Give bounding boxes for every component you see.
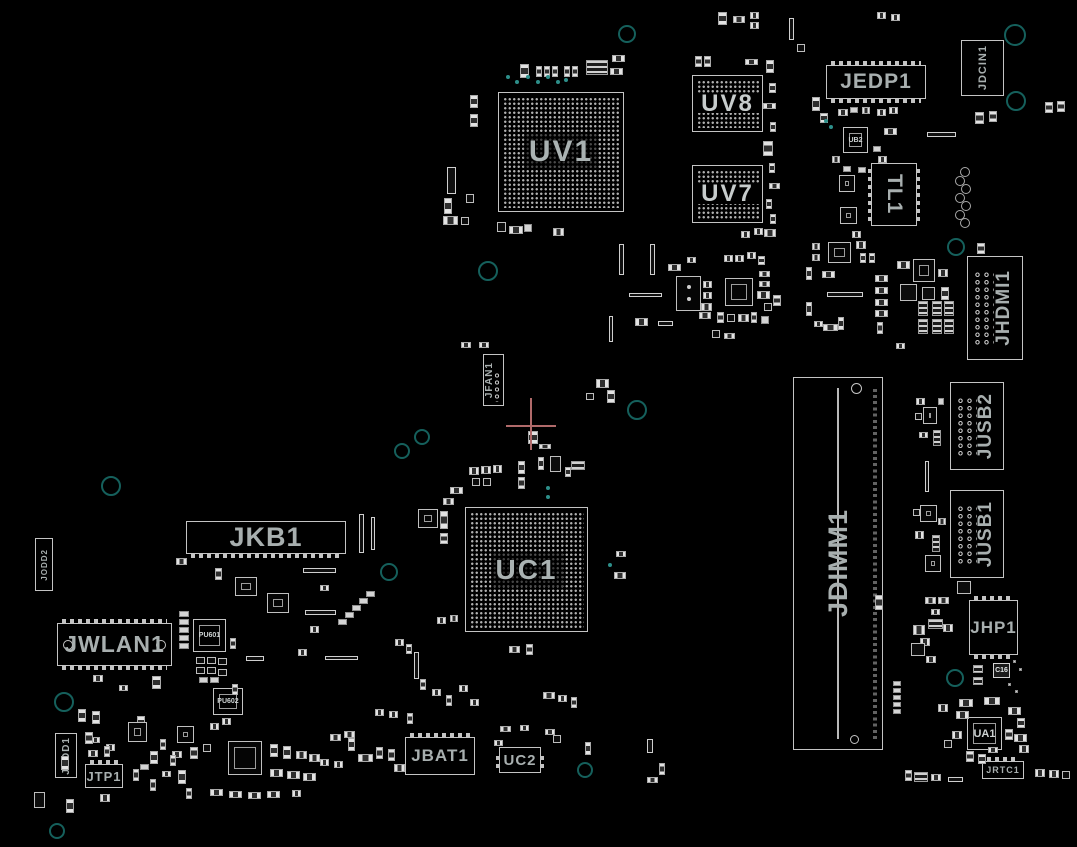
- component-label-jodd2: JODD2: [36, 539, 52, 590]
- passive-component: [229, 791, 242, 798]
- passive-component: [948, 777, 963, 782]
- component-uv8[interactable]: UV8: [692, 75, 763, 132]
- passive-component: [509, 226, 523, 234]
- passive-component: [1005, 729, 1013, 740]
- passive-component: [812, 97, 820, 111]
- component-ub2[interactable]: UB2: [843, 127, 868, 153]
- component-jbat1[interactable]: JBAT1: [405, 737, 475, 775]
- passive-component: [235, 577, 257, 596]
- passive-component: [923, 407, 937, 424]
- passive-component: [913, 625, 925, 635]
- passive-component: [1015, 690, 1018, 693]
- component-jkb1[interactable]: JKB1: [186, 521, 346, 554]
- passive-component: [884, 128, 897, 135]
- passive-component: [839, 175, 855, 192]
- passive-component: [893, 702, 901, 707]
- passive-component: [1019, 745, 1029, 753]
- mounting-hole: [380, 563, 398, 581]
- passive-component: [741, 231, 750, 238]
- passive-component: [828, 242, 851, 263]
- passive-component: [893, 695, 901, 700]
- passive-component: [1045, 102, 1053, 113]
- passive-component: [228, 741, 262, 775]
- passive-component: [989, 111, 997, 122]
- passive-component: [292, 790, 301, 797]
- coil-ring: [961, 184, 971, 194]
- component-label-uv1: UV1: [524, 134, 598, 170]
- passive-component: [769, 183, 780, 189]
- component-label-jfan1: JFAN1: [484, 355, 503, 405]
- passive-component: [938, 704, 948, 712]
- passive-component: [911, 643, 925, 656]
- passive-component: [497, 222, 506, 232]
- qfn-inner-pad: [424, 515, 432, 522]
- via-dot: [556, 80, 560, 84]
- passive-component: [928, 619, 943, 629]
- passive-component: [1057, 101, 1065, 112]
- component-label-jhdmi1: JHDMI1: [968, 257, 1022, 359]
- component-jhdmi1[interactable]: JHDMI1: [967, 256, 1023, 360]
- passive-component: [572, 66, 578, 77]
- passive-component: [210, 789, 223, 796]
- passive-component: [896, 343, 905, 349]
- passive-component: [875, 275, 888, 282]
- passive-component: [750, 12, 759, 19]
- passive-component: [757, 291, 770, 299]
- passive-component: [443, 216, 458, 225]
- passive-component: [550, 456, 561, 472]
- qfn-inner-pad: [845, 181, 849, 186]
- passive-component: [215, 568, 222, 580]
- component-jdimm1[interactable]: JDIMM1: [793, 377, 883, 750]
- passive-component: [344, 731, 355, 738]
- passive-component: [938, 398, 944, 405]
- passive-component: [552, 66, 558, 77]
- component-jodd2[interactable]: JODD2: [35, 538, 53, 591]
- passive-component: [459, 685, 468, 692]
- passive-component: [932, 319, 942, 334]
- passive-component: [759, 281, 770, 287]
- component-jhp1[interactable]: JHP1: [969, 600, 1018, 655]
- passive-component: [520, 725, 529, 731]
- passive-component: [571, 461, 585, 470]
- passive-component: [761, 316, 769, 324]
- via-dot: [515, 80, 519, 84]
- passive-component: [919, 432, 928, 438]
- passive-component: [913, 509, 920, 516]
- component-ua1[interactable]: UA1: [967, 717, 1002, 750]
- qfn-inner-pad: [273, 599, 283, 607]
- passive-component: [629, 293, 662, 297]
- qfn-inner-pad: [834, 248, 845, 257]
- passive-component: [738, 314, 749, 322]
- passive-component: [334, 761, 343, 768]
- passive-component: [832, 156, 840, 163]
- mounting-hole: [1006, 91, 1026, 111]
- component-uc1[interactable]: UC1: [465, 507, 588, 632]
- passive-component: [359, 598, 368, 604]
- passive-component: [470, 699, 479, 706]
- passive-component: [858, 167, 866, 173]
- passive-component: [406, 644, 412, 654]
- passive-component: [735, 255, 744, 262]
- connector-teeth: [191, 553, 341, 558]
- passive-component: [524, 224, 532, 232]
- mounting-hole: [54, 692, 74, 712]
- component-jedp1[interactable]: JEDP1: [826, 65, 926, 99]
- passive-component: [763, 103, 776, 109]
- passive-component: [914, 772, 928, 782]
- passive-component: [93, 675, 103, 682]
- passive-component: [1013, 660, 1016, 663]
- mounting-hole: [49, 823, 65, 839]
- pin-row: [540, 752, 544, 768]
- passive-component: [893, 709, 901, 714]
- component-jusb1[interactable]: JUSB1: [950, 490, 1004, 578]
- component-uv1[interactable]: UV1: [498, 92, 624, 212]
- passive-component: [518, 477, 525, 489]
- passive-component: [900, 284, 917, 301]
- passive-component: [248, 792, 261, 799]
- connector-teeth: [62, 665, 167, 670]
- passive-component: [1019, 668, 1022, 671]
- passive-component: [470, 114, 478, 127]
- passive-component: [466, 194, 474, 203]
- passive-component: [1049, 770, 1059, 778]
- passive-component: [210, 677, 219, 683]
- passive-component: [461, 342, 471, 348]
- passive-component: [586, 393, 594, 400]
- passive-component: [270, 769, 283, 777]
- passive-component: [447, 167, 456, 194]
- passive-component: [619, 244, 624, 275]
- passive-component: [852, 231, 861, 238]
- via-dot: [608, 563, 612, 567]
- passive-component: [320, 585, 329, 591]
- passive-component: [186, 788, 192, 799]
- qfn-inner-pad: [234, 747, 256, 769]
- passive-component: [1035, 769, 1045, 777]
- component-uv7[interactable]: UV7: [692, 165, 763, 223]
- passive-component: [770, 214, 776, 224]
- crosshair-v-line: [530, 398, 532, 450]
- passive-component: [959, 699, 973, 707]
- passive-component: [358, 754, 373, 762]
- passive-component: [699, 312, 711, 319]
- passive-component: [925, 461, 929, 492]
- passive-component: [375, 709, 384, 716]
- passive-component: [973, 677, 983, 685]
- passive-component: [764, 303, 772, 311]
- passive-component: [177, 726, 194, 743]
- passive-component: [658, 321, 673, 326]
- component-pu601[interactable]: PU601: [193, 619, 226, 652]
- passive-component: [957, 581, 971, 594]
- passive-component: [769, 163, 775, 173]
- passive-component: [494, 740, 503, 746]
- passive-component: [450, 615, 458, 622]
- passive-component: [877, 109, 886, 116]
- passive-component: [179, 619, 189, 625]
- component-label-jdimm1: JDIMM1: [794, 378, 882, 749]
- pin-dot: [687, 297, 691, 301]
- component-label-jtp1: JTP1: [86, 765, 122, 787]
- passive-component: [988, 747, 998, 753]
- mounting-hole: [627, 400, 647, 420]
- passive-component: [873, 146, 881, 152]
- passive-component: [564, 66, 570, 77]
- passive-component: [218, 658, 227, 665]
- component-jrtc1[interactable]: JRTC1: [982, 761, 1024, 779]
- passive-component: [246, 656, 264, 661]
- component-label-uv7: UV7: [696, 184, 759, 203]
- passive-component: [703, 281, 712, 288]
- component-label-jdcin1: JDCIN1: [962, 41, 1003, 95]
- passive-component: [320, 759, 329, 766]
- via-dot: [546, 495, 550, 499]
- passive-component: [889, 107, 898, 114]
- passive-component: [893, 681, 901, 686]
- via-dot: [546, 486, 550, 490]
- passive-component: [695, 56, 702, 67]
- passive-component: [585, 742, 591, 755]
- passive-component: [88, 750, 98, 757]
- passive-component: [758, 256, 765, 265]
- boardview-canvas[interactable]: UV1UC1UV8UV7JEDP1JDCIN1UB2TL1JHDMI1JUSB2…: [0, 0, 1077, 847]
- passive-component: [420, 679, 426, 690]
- passive-component: [196, 657, 205, 664]
- passive-component: [222, 718, 231, 725]
- component-label-jusb2: JUSB2: [951, 383, 1003, 469]
- passive-component: [210, 723, 219, 730]
- qfn-inner-pad: [846, 213, 851, 218]
- component-label-jkb1: JKB1: [187, 522, 345, 553]
- passive-component: [918, 301, 928, 316]
- passive-component: [770, 122, 776, 132]
- component-label-uc1: UC1: [490, 553, 562, 587]
- passive-component: [614, 572, 626, 579]
- passive-component: [287, 771, 300, 779]
- passive-component: [303, 773, 316, 781]
- passive-component: [943, 624, 953, 632]
- component-tl1[interactable]: TL1: [871, 163, 917, 226]
- passive-component: [178, 770, 186, 784]
- component-label-tl1: TL1: [872, 164, 916, 225]
- passive-component: [905, 770, 912, 781]
- passive-component: [450, 487, 463, 494]
- passive-component: [472, 478, 480, 486]
- passive-component: [309, 754, 320, 762]
- passive-component: [932, 301, 942, 316]
- passive-component: [162, 771, 171, 777]
- passive-component: [612, 55, 625, 62]
- passive-component: [944, 319, 954, 334]
- passive-component: [388, 749, 395, 761]
- passive-component: [893, 688, 901, 693]
- passive-component: [822, 271, 835, 278]
- crosshair-cursor[interactable]: [506, 398, 556, 450]
- passive-component: [437, 617, 446, 624]
- passive-component: [875, 299, 888, 306]
- passive-component: [952, 731, 962, 739]
- passive-component: [789, 18, 794, 40]
- passive-component: [440, 511, 448, 529]
- passive-component: [932, 535, 940, 552]
- passive-component: [877, 12, 886, 19]
- passive-component: [891, 14, 900, 21]
- passive-component: [179, 643, 189, 649]
- passive-component: [941, 287, 949, 300]
- component-label-uc2: UC2: [500, 748, 540, 772]
- component-label-ub2: UB2: [844, 128, 867, 152]
- passive-component: [418, 509, 438, 528]
- passive-component: [769, 83, 776, 93]
- passive-component: [938, 518, 946, 525]
- passive-component: [610, 68, 623, 75]
- passive-component: [718, 12, 727, 25]
- passive-component: [773, 295, 781, 306]
- passive-component: [751, 312, 757, 323]
- passive-component: [470, 95, 478, 108]
- passive-component: [366, 591, 375, 597]
- passive-component: [725, 278, 753, 306]
- passive-component: [650, 244, 655, 275]
- component-jusb2[interactable]: JUSB2: [950, 382, 1004, 470]
- passive-component: [296, 751, 307, 759]
- passive-component: [676, 276, 701, 311]
- passive-component: [944, 301, 954, 316]
- passive-component: [376, 747, 383, 759]
- passive-component: [394, 764, 405, 772]
- passive-component: [754, 228, 763, 235]
- passive-component: [338, 619, 347, 625]
- passive-component: [877, 322, 883, 334]
- passive-component: [152, 676, 161, 689]
- passive-component: [763, 141, 773, 156]
- passive-component: [325, 656, 358, 660]
- passive-component: [933, 430, 941, 446]
- passive-component: [104, 746, 110, 757]
- passive-component: [469, 467, 479, 475]
- qfn-inner-pad: [183, 732, 188, 737]
- passive-component: [926, 656, 936, 663]
- via-dot: [506, 75, 510, 79]
- passive-component: [897, 261, 910, 269]
- component-c16[interactable]: C16: [993, 663, 1010, 678]
- passive-component: [764, 229, 776, 237]
- connector-teeth: [974, 654, 1013, 659]
- component-jfan1[interactable]: JFAN1: [483, 354, 504, 406]
- passive-component: [543, 692, 555, 699]
- passive-component: [704, 56, 711, 67]
- passive-component: [812, 254, 820, 261]
- component-pu602[interactable]: PU602: [213, 688, 243, 715]
- passive-component: [371, 517, 375, 550]
- passive-component: [745, 59, 758, 65]
- via-dot: [824, 119, 828, 123]
- passive-component: [860, 253, 866, 263]
- passive-component: [925, 597, 936, 604]
- passive-component: [78, 709, 86, 722]
- passive-component: [724, 333, 735, 339]
- passive-component: [724, 255, 733, 262]
- component-label-jusb1: JUSB1: [951, 491, 1003, 577]
- passive-component: [875, 310, 888, 317]
- passive-component: [609, 316, 613, 342]
- passive-component: [659, 763, 665, 775]
- passive-component: [856, 241, 866, 249]
- mounting-hole: [577, 762, 593, 778]
- passive-component: [916, 398, 925, 405]
- passive-component: [869, 253, 875, 263]
- passive-component: [956, 711, 969, 719]
- passive-component: [34, 792, 45, 808]
- passive-component: [607, 390, 615, 403]
- passive-component: [509, 646, 520, 653]
- passive-component: [571, 697, 577, 708]
- mounting-hole: [618, 25, 636, 43]
- component-jtp1[interactable]: JTP1: [85, 764, 123, 788]
- passive-component: [931, 774, 941, 781]
- passive-component: [199, 677, 208, 683]
- passive-component: [348, 738, 355, 751]
- mounting-hole: [1004, 24, 1026, 46]
- passive-component: [703, 292, 712, 299]
- component-jwlan1[interactable]: JWLAN1: [57, 623, 172, 666]
- passive-component: [938, 269, 948, 277]
- passive-component: [978, 754, 986, 764]
- passive-component: [518, 461, 525, 474]
- passive-component: [203, 744, 211, 752]
- passive-component: [432, 689, 441, 696]
- passive-component: [119, 685, 128, 691]
- passive-component: [310, 626, 319, 633]
- passive-component: [727, 314, 735, 322]
- component-uc2[interactable]: UC2: [499, 747, 541, 773]
- passive-component: [133, 769, 139, 781]
- passive-component: [984, 697, 1000, 705]
- component-jdcin1[interactable]: JDCIN1: [961, 40, 1004, 96]
- passive-component: [61, 756, 69, 770]
- passive-component: [843, 166, 851, 172]
- passive-component: [797, 44, 805, 52]
- passive-component: [712, 330, 720, 338]
- connector-teeth: [831, 98, 921, 103]
- passive-component: [925, 555, 941, 572]
- passive-component: [838, 109, 848, 116]
- via-dot: [564, 78, 568, 82]
- coil-ring: [961, 201, 971, 211]
- passive-component: [160, 739, 166, 750]
- passive-component: [443, 498, 454, 505]
- passive-component: [389, 711, 398, 718]
- passive-component: [176, 558, 187, 565]
- passive-component: [493, 465, 502, 473]
- passive-component: [298, 649, 307, 656]
- passive-component: [1008, 683, 1011, 686]
- passive-component: [207, 657, 216, 664]
- passive-component: [977, 243, 985, 254]
- pin-dot: [687, 285, 691, 289]
- passive-component: [270, 744, 278, 757]
- passive-component: [85, 732, 93, 744]
- passive-component: [179, 627, 189, 633]
- passive-component: [170, 755, 176, 766]
- passive-component: [931, 609, 940, 615]
- component-label-ua1: UA1: [968, 718, 1001, 749]
- passive-component: [553, 228, 564, 236]
- passive-component: [812, 243, 820, 250]
